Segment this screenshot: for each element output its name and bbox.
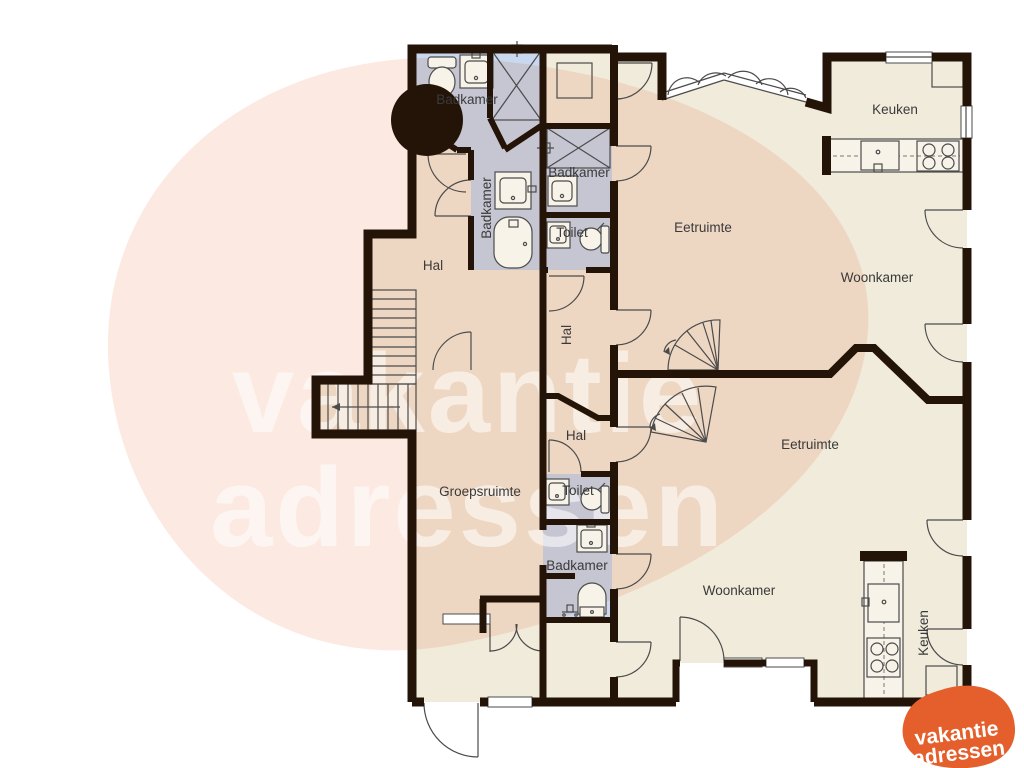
room-label-toilet-top: Toilet bbox=[556, 225, 588, 240]
room-label-keuken-bottom: Keuken bbox=[916, 610, 931, 656]
wall-stub bbox=[860, 551, 907, 561]
room-label-hal-mid: Hal bbox=[559, 325, 574, 345]
room-label-badkamer-2: Badkamer bbox=[548, 165, 610, 180]
sink-icon bbox=[548, 176, 577, 206]
kitchen-sink-icon bbox=[862, 584, 899, 622]
room-label-eetruimte-bottom: Eetruimte bbox=[781, 437, 839, 452]
room-label-badkamer-mid: Badkamer bbox=[479, 177, 494, 239]
floor-plan: vakantie adressen bbox=[0, 0, 1024, 768]
kitchen-counter bbox=[862, 561, 903, 700]
wall-stub bbox=[822, 136, 831, 175]
room-label-badkamer-bottom: Badkamer bbox=[546, 558, 608, 573]
room-label-woonkamer-bottom: Woonkamer bbox=[703, 583, 776, 598]
sink-icon bbox=[577, 521, 607, 552]
room-label-hal-2: Hal bbox=[566, 428, 586, 443]
watermark-line1: vakantie bbox=[232, 331, 704, 456]
room-label-toilet-bottom: Toilet bbox=[562, 483, 594, 498]
bathtub-icon bbox=[494, 217, 532, 268]
kitchen-sink-icon bbox=[861, 141, 899, 172]
room-label-hal-main: Hal bbox=[423, 258, 443, 273]
toilet-icon bbox=[578, 583, 606, 617]
room-label-badkamer-top-left: Badkamer bbox=[436, 92, 498, 107]
window bbox=[488, 697, 532, 707]
window bbox=[766, 658, 804, 667]
sink-icon bbox=[495, 172, 536, 209]
room-label-eetruimte-top: Eetruimte bbox=[674, 220, 732, 235]
room-label-keuken-top: Keuken bbox=[872, 102, 918, 117]
room-label-woonkamer-top: Woonkamer bbox=[841, 270, 914, 285]
watermark-line2: adressen bbox=[210, 445, 726, 570]
kitchen-counter bbox=[830, 139, 963, 172]
floor-plan-page: vakantie adressen bbox=[0, 0, 1024, 768]
room-label-groepsruimte: Groepsruimte bbox=[439, 484, 521, 499]
